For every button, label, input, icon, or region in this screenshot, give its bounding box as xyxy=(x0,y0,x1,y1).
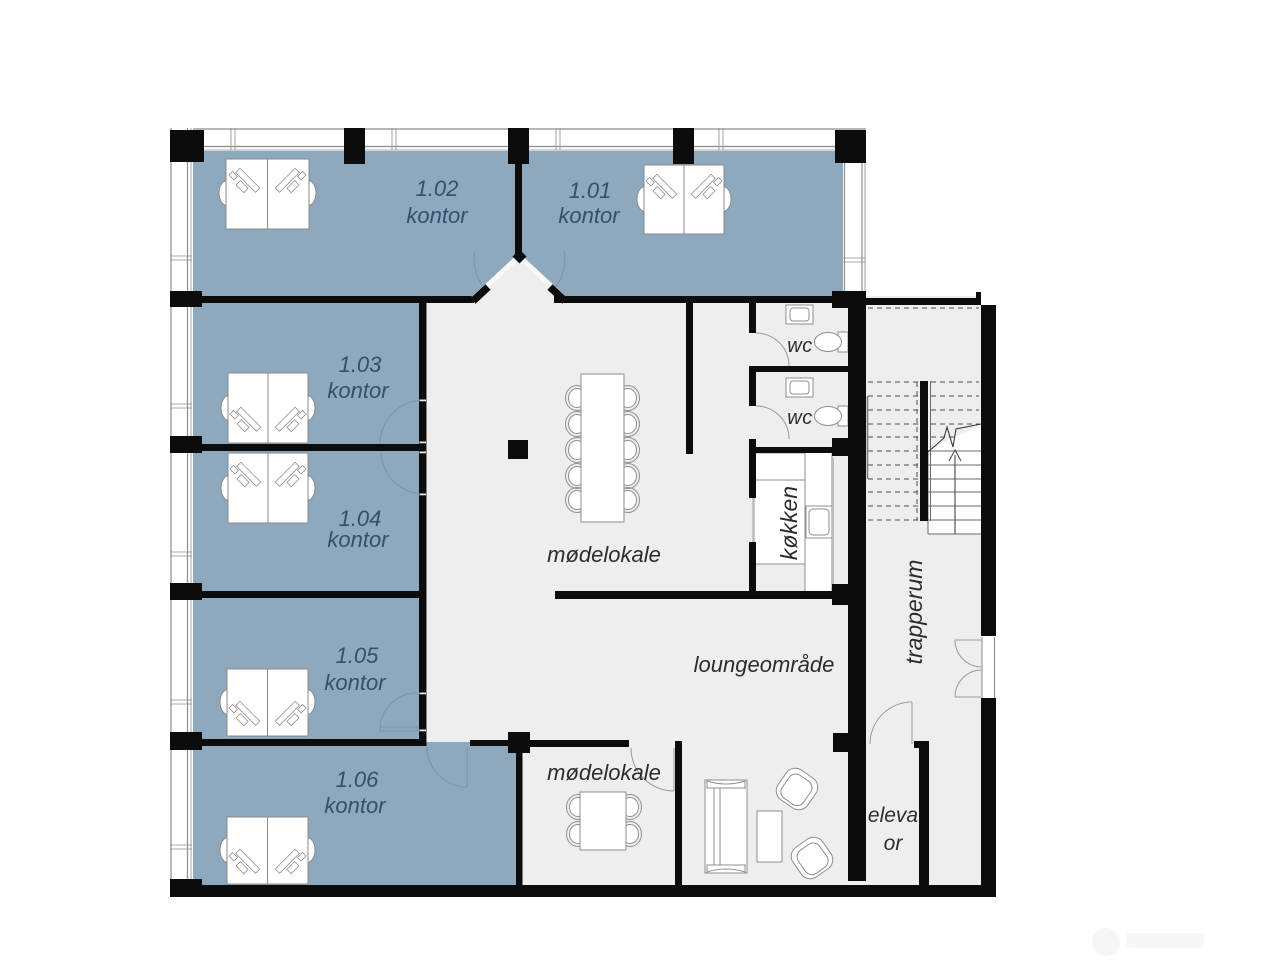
svg-text:køkken: køkken xyxy=(776,486,802,560)
svg-text:wc: wc xyxy=(787,407,812,429)
svg-text:mødelokale: mødelokale xyxy=(547,760,661,785)
svg-text:1.05: 1.05 xyxy=(336,643,380,668)
svg-text:wc: wc xyxy=(787,335,812,357)
svg-text:1.06: 1.06 xyxy=(336,767,380,792)
svg-text:kontor: kontor xyxy=(406,203,469,228)
svg-text:kontor: kontor xyxy=(327,378,390,403)
svg-text:1.03: 1.03 xyxy=(339,352,383,377)
svg-text:eleva: eleva xyxy=(868,804,918,827)
svg-text:1.02: 1.02 xyxy=(416,176,459,201)
svg-text:loungeområde: loungeområde xyxy=(694,652,835,677)
svg-text:kontor: kontor xyxy=(324,793,387,818)
svg-text:kontor: kontor xyxy=(324,670,387,695)
svg-text:kontor: kontor xyxy=(327,527,390,552)
svg-text:1.01: 1.01 xyxy=(569,178,612,203)
svg-text:kontor: kontor xyxy=(558,203,621,228)
svg-text:or: or xyxy=(884,832,904,855)
svg-text:trapperum: trapperum xyxy=(901,560,927,665)
svg-text:mødelokale: mødelokale xyxy=(547,542,661,567)
